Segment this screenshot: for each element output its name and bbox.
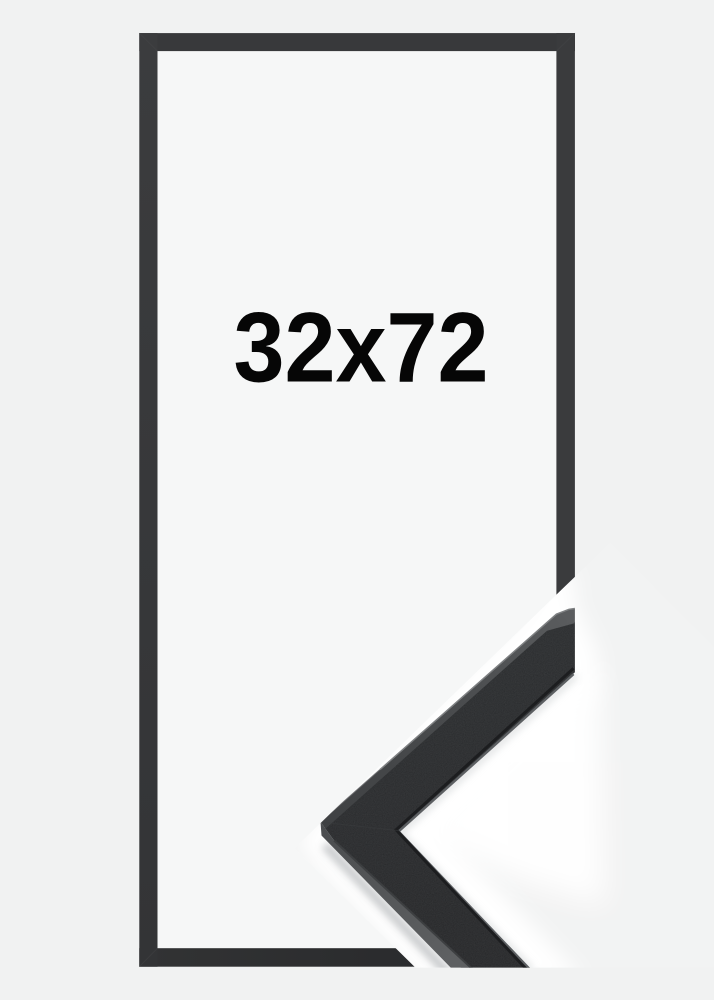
svg-text:32x72: 32x72 [234,292,489,403]
